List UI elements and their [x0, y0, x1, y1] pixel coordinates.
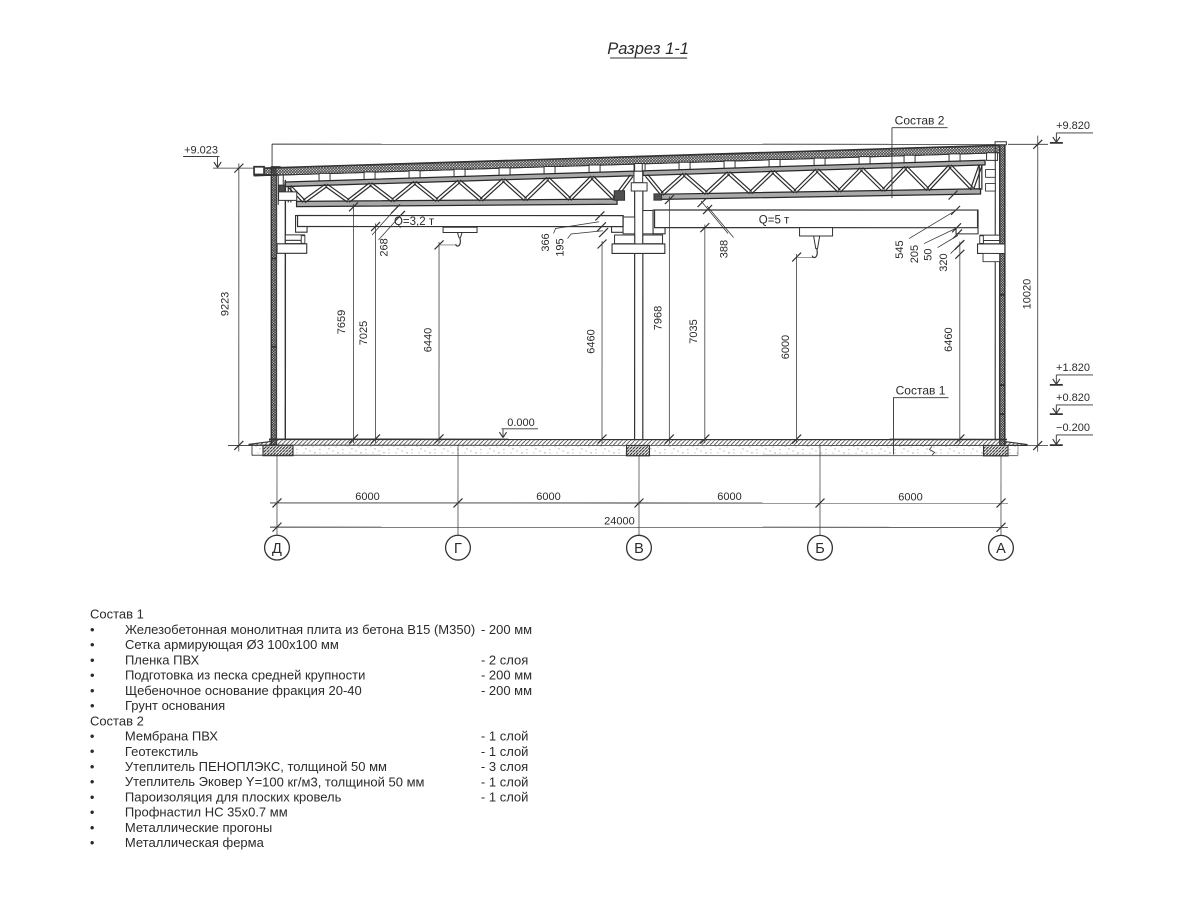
svg-text:10020: 10020	[1021, 279, 1033, 310]
svg-text:Профнастил НС 35х0.7 мм: Профнастил НС 35х0.7 мм	[125, 805, 288, 820]
svg-text:Q=3,2 т: Q=3,2 т	[394, 216, 435, 228]
svg-text:366: 366	[540, 233, 552, 251]
svg-text:0.000: 0.000	[507, 417, 535, 429]
svg-text:- 1 слой: - 1 слой	[481, 790, 529, 805]
svg-text:+9.820: +9.820	[1056, 120, 1090, 132]
svg-text:- 200 мм: - 200 мм	[481, 683, 532, 698]
svg-text:- 1 слой: - 1 слой	[481, 744, 529, 759]
svg-text:6000: 6000	[898, 491, 922, 503]
svg-text:Утеплитель Эковер Y=100 кг/м3,: Утеплитель Эковер Y=100 кг/м3, толщиной …	[125, 774, 425, 789]
svg-text:Грунт основания: Грунт основания	[125, 698, 225, 713]
svg-text:•: •	[90, 744, 95, 759]
svg-text:Б: Б	[815, 541, 825, 557]
svg-text:Мембрана ПВХ: Мембрана ПВХ	[125, 729, 218, 744]
svg-text:Пленка ПВХ: Пленка ПВХ	[125, 652, 200, 667]
svg-text:Г: Г	[454, 541, 462, 557]
svg-text:6460: 6460	[585, 329, 597, 353]
svg-text:А: А	[996, 541, 1006, 557]
svg-text:Сетка армирующая Ø3 100х100 мм: Сетка армирующая Ø3 100х100 мм	[125, 637, 339, 652]
svg-text:•: •	[90, 622, 95, 637]
svg-text:Подготовка из песка средней кр: Подготовка из песка средней крупности	[125, 668, 365, 683]
svg-text:24000: 24000	[604, 515, 635, 527]
svg-text:7968: 7968	[652, 306, 664, 330]
svg-text:50: 50	[923, 248, 935, 260]
svg-text:Железобетонная монолитная плит: Железобетонная монолитная плита из бетон…	[125, 622, 475, 637]
svg-text:•: •	[90, 820, 95, 835]
svg-text:Состав 1: Состав 1	[896, 384, 946, 398]
svg-text:6000: 6000	[355, 491, 379, 503]
svg-text:•: •	[90, 759, 95, 774]
svg-text:6460: 6460	[943, 327, 955, 351]
svg-text:•: •	[90, 652, 95, 667]
svg-text:Д: Д	[272, 541, 282, 557]
svg-text:320: 320	[938, 253, 950, 271]
svg-text:•: •	[90, 683, 95, 698]
svg-text:7035: 7035	[688, 319, 700, 343]
svg-text:6000: 6000	[780, 335, 792, 359]
svg-text:- 1 слой: - 1 слой	[481, 774, 529, 789]
svg-text:Состав 2: Состав 2	[895, 114, 945, 128]
svg-text:+1.820: +1.820	[1056, 362, 1090, 374]
svg-text:•: •	[90, 668, 95, 683]
svg-text:268: 268	[379, 238, 391, 256]
svg-text:9223: 9223	[219, 292, 231, 316]
svg-text:7659: 7659	[336, 310, 348, 334]
svg-text:Разрез 1-1: Разрез 1-1	[607, 40, 689, 58]
svg-text:- 3 слоя: - 3 слоя	[481, 759, 528, 774]
svg-text:Металлическая ферма: Металлическая ферма	[125, 835, 265, 850]
svg-text:6000: 6000	[536, 491, 560, 503]
svg-text:Пароизоляция для плоских крове: Пароизоляция для плоских кровель	[125, 789, 342, 804]
svg-text:•: •	[90, 698, 95, 713]
svg-text:Q=5 т: Q=5 т	[759, 215, 790, 227]
svg-text:Металлические прогоны: Металлические прогоны	[125, 820, 272, 835]
svg-text:−0.200: −0.200	[1056, 422, 1090, 434]
svg-text:•: •	[90, 835, 95, 850]
svg-text:+0.820: +0.820	[1056, 392, 1090, 404]
svg-text:•: •	[90, 774, 95, 789]
svg-text:•: •	[90, 729, 95, 744]
svg-text:+9.023: +9.023	[184, 144, 218, 156]
svg-text:•: •	[90, 805, 95, 820]
svg-text:205: 205	[909, 245, 921, 263]
svg-text:- 2 слоя: - 2 слоя	[481, 652, 528, 667]
svg-text:Утеплитель ПЕНОПЛЭКС, толщиной: Утеплитель ПЕНОПЛЭКС, толщиной 50 мм	[125, 759, 387, 774]
svg-text:Щебеночное основание фракция 2: Щебеночное основание фракция 20-40	[125, 683, 362, 698]
svg-text:- 200 мм: - 200 мм	[481, 622, 532, 637]
svg-text:•: •	[90, 637, 95, 652]
svg-text:В: В	[634, 541, 644, 557]
svg-text:545: 545	[894, 240, 906, 258]
svg-text:Геотекстиль: Геотекстиль	[125, 744, 199, 759]
svg-text:7025: 7025	[358, 321, 370, 345]
svg-text:Состав 2: Состав 2	[90, 713, 144, 728]
svg-text:•: •	[90, 789, 95, 804]
svg-text:195: 195	[554, 238, 566, 256]
svg-text:- 1 слой: - 1 слой	[481, 729, 529, 744]
svg-text:6440: 6440	[422, 328, 434, 352]
svg-text:6000: 6000	[717, 491, 741, 503]
svg-text:Состав 1: Состав 1	[90, 607, 144, 622]
svg-text:- 200 мм: - 200 мм	[481, 668, 532, 683]
svg-text:388: 388	[719, 240, 731, 258]
